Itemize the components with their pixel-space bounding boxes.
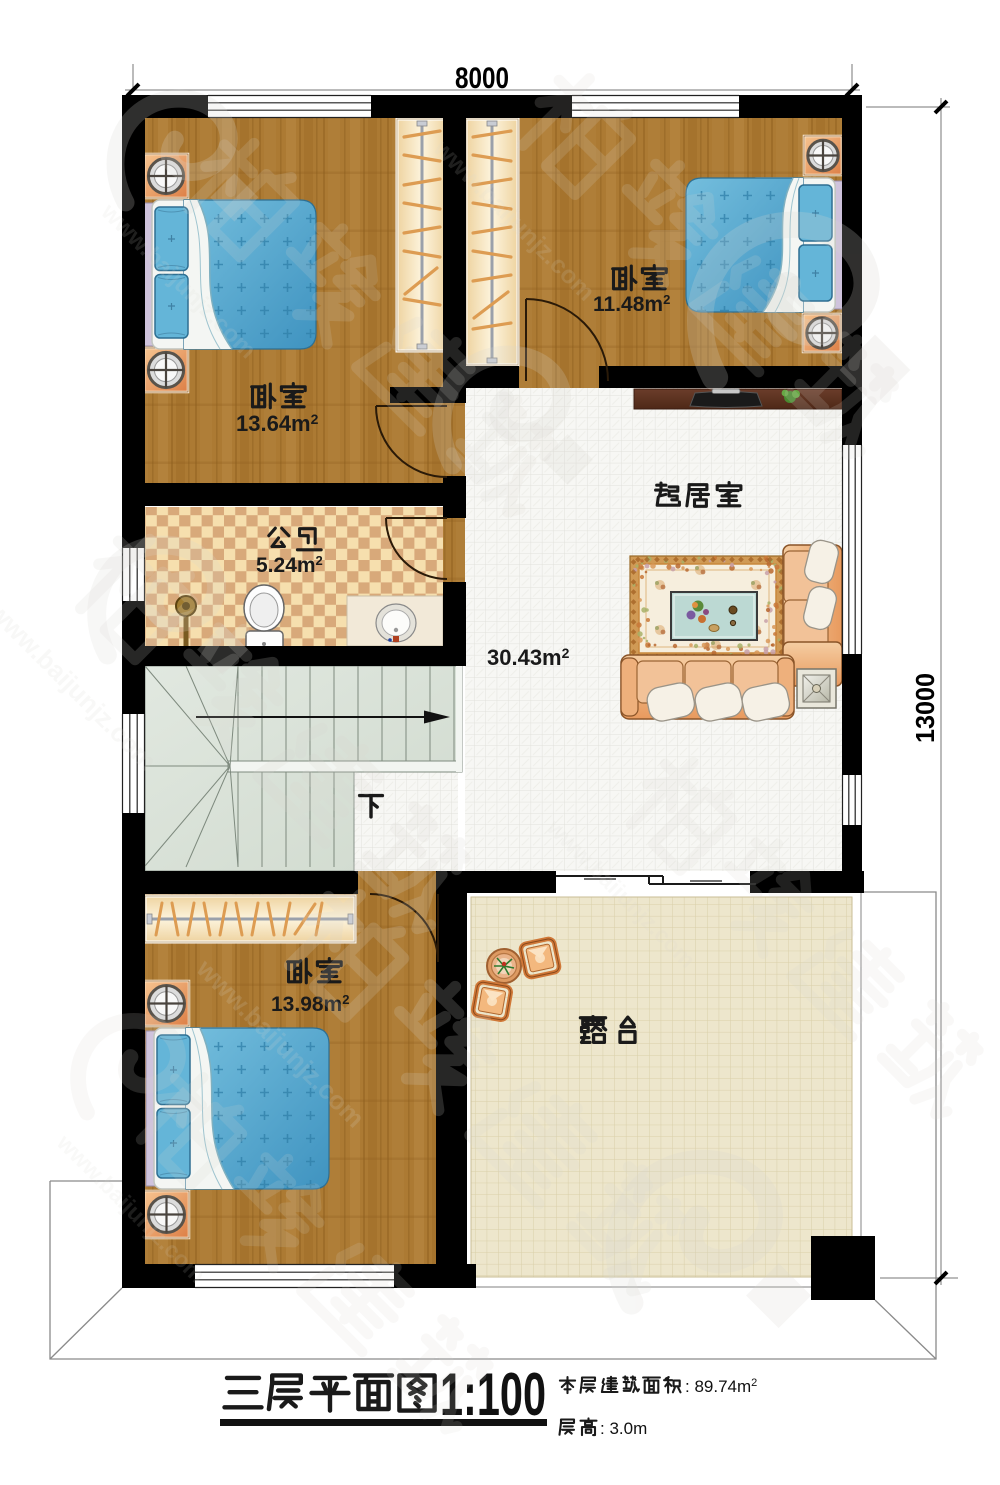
svg-text:8000: 8000 [455,62,509,95]
svg-text:13000: 13000 [910,673,940,743]
svg-text:: 89.74m2: : 89.74m2 [685,1377,757,1396]
svg-text:5.24m2: 5.24m2 [256,553,323,577]
svg-text:30.43m2: 30.43m2 [487,645,570,670]
svg-text:: 3.0m: : 3.0m [600,1419,647,1438]
svg-text:11.48m2: 11.48m2 [593,292,670,316]
svg-text:13.64m2: 13.64m2 [236,411,319,436]
